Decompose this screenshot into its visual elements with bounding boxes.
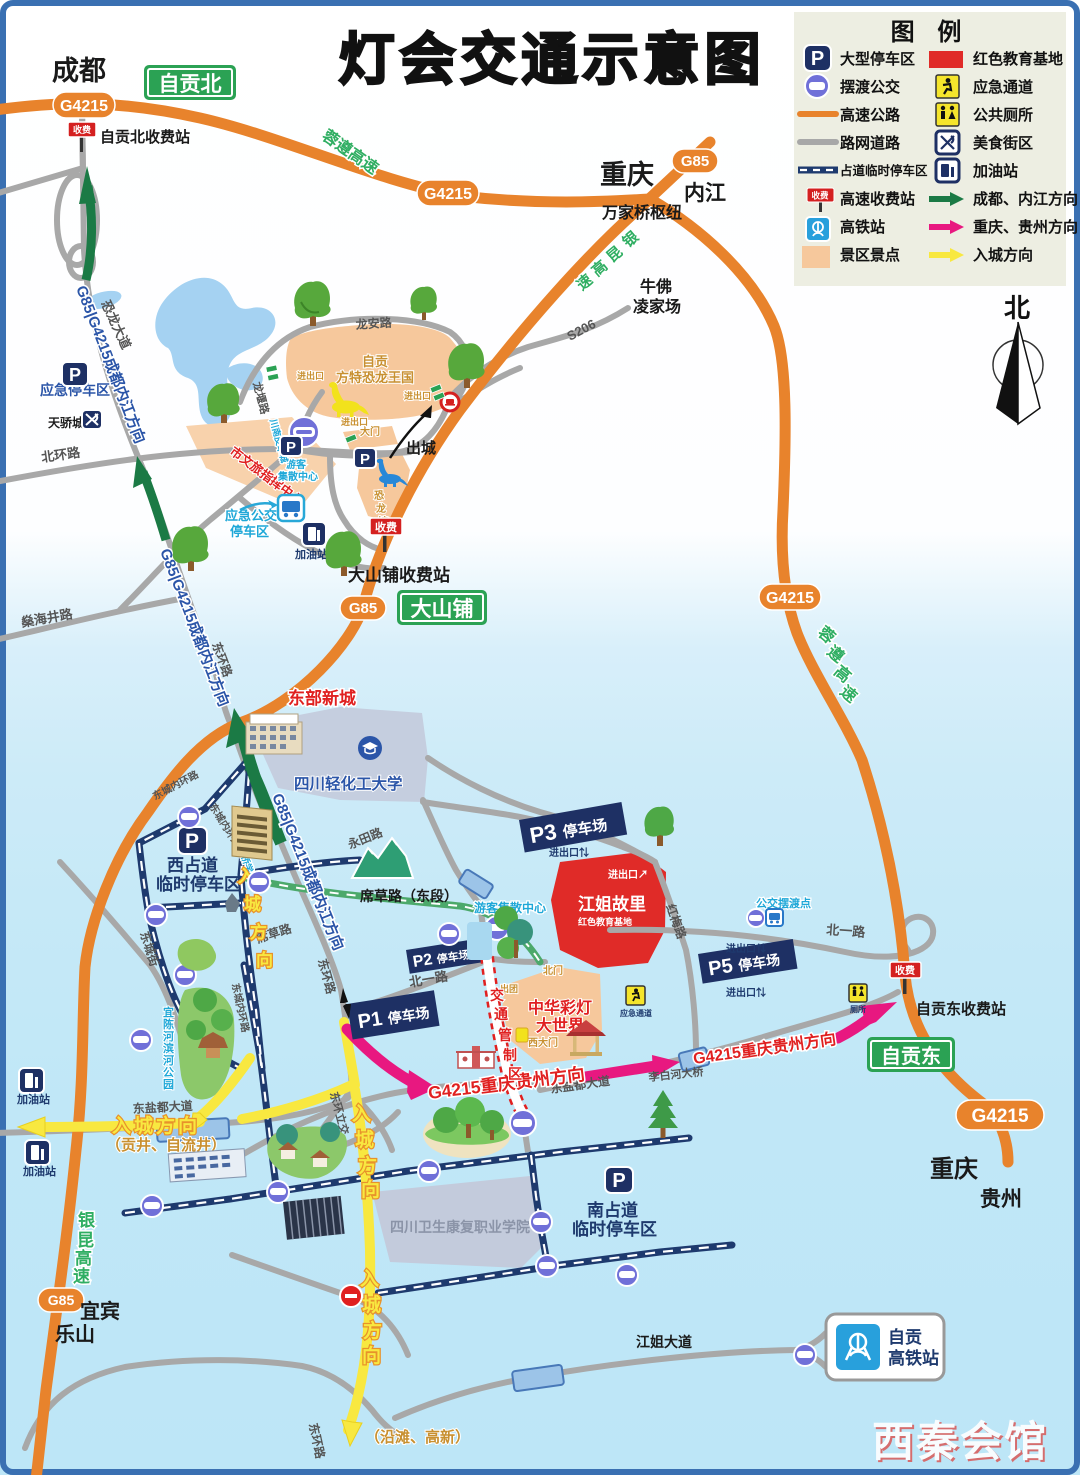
svg-text:凌家场: 凌家场 xyxy=(633,297,681,316)
svg-text:红色教育基地: 红色教育基地 xyxy=(973,50,1063,68)
svg-text:P: P xyxy=(185,830,199,853)
svg-text:园: 园 xyxy=(163,1078,174,1091)
svg-text:应急通道: 应急通道 xyxy=(973,78,1033,96)
svg-text:G4215: G4215 xyxy=(60,98,108,115)
svg-text:自贡北收费站: 自贡北收费站 xyxy=(100,128,190,146)
svg-text:方: 方 xyxy=(363,1319,382,1342)
svg-text:南占道: 南占道 xyxy=(587,1200,638,1220)
svg-text:G85: G85 xyxy=(349,600,377,617)
svg-text:进出口⇅: 进出口⇅ xyxy=(726,986,766,999)
svg-text:交: 交 xyxy=(490,987,504,1003)
svg-text:中华彩灯: 中华彩灯 xyxy=(528,998,592,1017)
svg-text:入城方向: 入城方向 xyxy=(112,1114,200,1137)
svg-text:G85: G85 xyxy=(681,153,709,170)
svg-text:G4215: G4215 xyxy=(424,186,472,203)
svg-text:红色教育基地: 红色教育基地 xyxy=(578,916,632,927)
svg-text:城: 城 xyxy=(355,1128,374,1151)
svg-text:占道临时停车区: 占道临时停车区 xyxy=(840,163,928,178)
svg-text:方特恐龙王国: 方特恐龙王国 xyxy=(336,370,414,385)
svg-text:入: 入 xyxy=(352,1103,371,1125)
svg-text:应急公交: 应急公交 xyxy=(225,508,277,523)
svg-text:公: 公 xyxy=(163,1066,174,1079)
svg-text:进出口: 进出口 xyxy=(341,416,368,427)
svg-text:宜宾: 宜宾 xyxy=(80,1299,120,1323)
svg-text:应急通道: 应急通道 xyxy=(620,1008,652,1018)
svg-text:美食街区: 美食街区 xyxy=(973,134,1033,152)
svg-text:城: 城 xyxy=(244,895,261,914)
svg-text:收费: 收费 xyxy=(895,964,915,977)
svg-text:成都、内江方向: 成都、内江方向 xyxy=(973,190,1078,208)
svg-text:停车区: 停车区 xyxy=(230,524,269,539)
svg-text:西占道: 西占道 xyxy=(167,855,218,875)
svg-text:入城方向: 入城方向 xyxy=(973,246,1033,264)
svg-text:速: 速 xyxy=(73,1266,90,1286)
svg-text:加油站: 加油站 xyxy=(16,1092,50,1106)
svg-text:景区景点: 景区景点 xyxy=(840,246,900,264)
svg-text:进出口↗: 进出口↗ xyxy=(608,868,648,881)
svg-text:自贡东收费站: 自贡东收费站 xyxy=(916,1000,1006,1018)
svg-text:北: 北 xyxy=(1004,293,1030,323)
svg-text:乐山: 乐山 xyxy=(55,1323,95,1346)
svg-text:进出口: 进出口 xyxy=(297,370,324,381)
svg-text:临时停车区: 临时停车区 xyxy=(156,874,241,894)
svg-text:方: 方 xyxy=(250,922,267,942)
svg-text:P: P xyxy=(360,451,370,468)
svg-text:高速公路: 高速公路 xyxy=(840,106,901,124)
svg-text:河: 河 xyxy=(163,1029,174,1043)
svg-text:宜: 宜 xyxy=(163,1005,174,1019)
svg-text:自贡北: 自贡北 xyxy=(159,72,222,96)
svg-text:贵州: 贵州 xyxy=(980,1188,1022,1211)
svg-text:加油站: 加油站 xyxy=(22,1164,56,1178)
svg-text:图 例: 图 例 xyxy=(891,19,970,46)
svg-text:收费: 收费 xyxy=(375,520,397,534)
svg-text:陈: 陈 xyxy=(163,1017,174,1031)
svg-text:公共厕所: 公共厕所 xyxy=(973,107,1033,124)
svg-text:内江: 内江 xyxy=(684,181,726,205)
svg-text:滨: 滨 xyxy=(163,1041,174,1055)
svg-text:G4215: G4215 xyxy=(766,590,814,607)
svg-text:昆: 昆 xyxy=(77,1231,94,1250)
svg-text:东盐都大道: 东盐都大道 xyxy=(132,1098,193,1116)
svg-text:自贡: 自贡 xyxy=(362,354,388,369)
svg-text:区: 区 xyxy=(508,1066,522,1082)
svg-text:公交摆渡点: 公交摆渡点 xyxy=(756,896,811,910)
svg-text:进出口⇅: 进出口⇅ xyxy=(549,846,589,859)
svg-text:重庆: 重庆 xyxy=(930,1156,978,1183)
svg-text:P: P xyxy=(69,365,81,385)
svg-text:路网道路: 路网道路 xyxy=(840,134,901,152)
svg-text:成都: 成都 xyxy=(52,56,106,86)
svg-text:进出口⇅: 进出口⇅ xyxy=(726,942,766,955)
svg-text:天骄城: 天骄城 xyxy=(48,415,84,430)
svg-text:出城: 出城 xyxy=(406,439,436,457)
svg-text:摆渡公交: 摆渡公交 xyxy=(840,78,900,96)
svg-text:重庆、贵州方向: 重庆、贵州方向 xyxy=(973,218,1078,236)
svg-text:向: 向 xyxy=(361,1178,380,1201)
svg-text:G85: G85 xyxy=(48,1292,75,1308)
svg-text:大山铺收费站: 大山铺收费站 xyxy=(348,565,450,585)
svg-text:制: 制 xyxy=(503,1047,517,1063)
svg-text:自贡: 自贡 xyxy=(888,1327,922,1347)
svg-text:北一路: 北一路 xyxy=(826,922,867,940)
svg-text:重庆: 重庆 xyxy=(600,159,654,190)
svg-text:北门: 北门 xyxy=(543,964,563,977)
svg-text:席草路（东段）: 席草路（东段） xyxy=(360,888,458,904)
svg-text:方: 方 xyxy=(358,1154,377,1177)
svg-text:集散中心: 集散中心 xyxy=(277,470,318,483)
svg-text:通: 通 xyxy=(494,1006,508,1022)
svg-text:东部新城: 东部新城 xyxy=(288,688,356,708)
svg-text:大型停车区: 大型停车区 xyxy=(840,50,915,68)
svg-text:万家桥枢纽: 万家桥枢纽 xyxy=(601,203,682,222)
svg-text:牛佛: 牛佛 xyxy=(640,277,672,296)
svg-text:灯会交通示意图: 灯会交通示意图 xyxy=(339,28,766,91)
svg-text:西大门: 西大门 xyxy=(528,1036,558,1049)
svg-text:管: 管 xyxy=(498,1027,512,1043)
svg-text:收费: 收费 xyxy=(73,124,91,135)
svg-text:银: 银 xyxy=(78,1210,96,1230)
svg-text:四川轻化工大学: 四川轻化工大学 xyxy=(294,774,403,793)
svg-text:江姐故里: 江姐故里 xyxy=(578,894,646,914)
svg-text:江姐大道: 江姐大道 xyxy=(636,1334,692,1350)
svg-text:高速收费站: 高速收费站 xyxy=(840,190,915,208)
svg-text:大山铺: 大山铺 xyxy=(411,598,474,621)
svg-text:加油站: 加油站 xyxy=(972,162,1018,180)
svg-text:收费: 收费 xyxy=(811,191,829,201)
svg-text:龙安路: 龙安路 xyxy=(355,314,393,332)
svg-text:高铁站: 高铁站 xyxy=(888,1348,939,1368)
svg-text:临时停车区: 临时停车区 xyxy=(572,1219,657,1239)
svg-text:龙: 龙 xyxy=(375,502,386,515)
svg-text:恐: 恐 xyxy=(374,490,384,502)
svg-text:高: 高 xyxy=(75,1248,92,1268)
svg-text:加油站: 加油站 xyxy=(294,547,328,561)
svg-text:四川卫生康复职业学院: 四川卫生康复职业学院 xyxy=(390,1219,530,1235)
svg-text:城: 城 xyxy=(362,1293,381,1316)
svg-text:厕所: 厕所 xyxy=(850,1004,866,1014)
svg-text:向: 向 xyxy=(256,950,273,970)
svg-text:P: P xyxy=(286,439,296,456)
svg-text:P: P xyxy=(811,48,824,70)
svg-text:自贡东: 自贡东 xyxy=(881,1044,941,1068)
svg-text:（沿滩、高新）: （沿滩、高新） xyxy=(365,1428,470,1446)
svg-text:向: 向 xyxy=(362,1344,381,1367)
svg-text:进出口: 进出口 xyxy=(404,390,431,401)
svg-text:P: P xyxy=(612,1170,625,1192)
svg-text:入: 入 xyxy=(360,1268,379,1290)
svg-text:西秦会馆: 西秦会馆 xyxy=(872,1418,1048,1465)
svg-text:G4215: G4215 xyxy=(971,1106,1028,1127)
svg-text:高铁站: 高铁站 xyxy=(840,218,885,236)
svg-text:河: 河 xyxy=(163,1053,174,1067)
